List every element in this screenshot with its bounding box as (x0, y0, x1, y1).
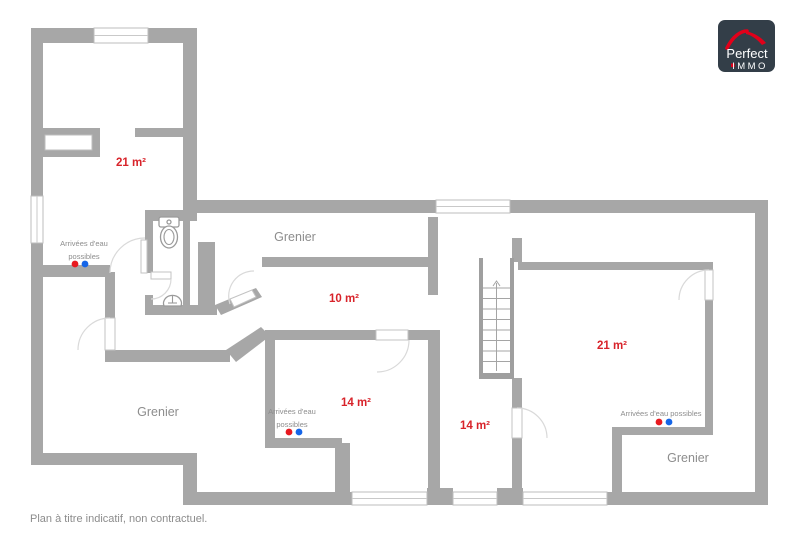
door (512, 408, 547, 438)
water-supply-bottom-left: Arrivées d'eau possibles (268, 407, 316, 435)
wall-segment (612, 427, 713, 435)
wall-segment (512, 378, 522, 408)
room-area-label: 21 m² (597, 340, 627, 352)
window (453, 492, 497, 505)
brand-logo: Perfect IMMO (718, 20, 775, 72)
wall-segment (265, 438, 342, 448)
hot-water-dot (656, 419, 663, 426)
room-name-label: Grenier (667, 451, 709, 465)
wall-segment (105, 350, 230, 362)
water-supply-label: possibles (68, 252, 100, 261)
floor-plan-drawing: Arrivées d'eau possibles Arrivées d'eau … (0, 0, 800, 534)
room-area-label: 14 m² (341, 397, 371, 409)
room-area-label: 10 m² (329, 293, 359, 305)
wall-pillar (497, 488, 523, 505)
wall-segment (755, 200, 768, 503)
room-name-label: Grenier (274, 230, 316, 244)
room-area-label: 14 m² (460, 420, 490, 432)
wall-segment (518, 262, 713, 270)
wall-segment (183, 28, 197, 212)
window (94, 28, 148, 43)
wall-segment (183, 492, 352, 505)
diagonal-wall (226, 327, 270, 362)
wall-segment (198, 242, 215, 313)
door (110, 238, 147, 273)
toilet-icon (159, 217, 179, 248)
door (376, 330, 409, 372)
hot-water-dot (286, 429, 293, 436)
wall-segment (105, 272, 115, 318)
wall-segment (705, 300, 713, 427)
water-supply-bottom-right: Arrivées d'eau possibles (620, 409, 701, 425)
cold-water-dot (296, 429, 303, 436)
wall-segment (31, 265, 110, 277)
room-area-label: 21 m² (116, 157, 146, 169)
chimney-flue (45, 135, 92, 150)
logo-suffix-text: IMMO (732, 61, 768, 72)
window (31, 196, 43, 243)
wall-segment (265, 330, 275, 448)
wall-segment (31, 43, 43, 196)
water-supply-top-left: Arrivées d'eau possibles (60, 239, 108, 267)
window (436, 200, 510, 213)
water-supply-label: Arrivées d'eau (60, 239, 108, 248)
cold-water-dot (82, 261, 89, 268)
wall-segment (183, 200, 436, 213)
wall-segment (428, 330, 440, 492)
sink-icon (163, 295, 181, 306)
disclaimer-text: Plan à titre indicatif, non contractuel. (30, 513, 207, 525)
water-supply-label: Arrivées d'eau (268, 407, 316, 416)
hot-water-dot (72, 261, 79, 268)
wall-segment (135, 128, 183, 137)
door (151, 272, 171, 299)
window (523, 492, 607, 505)
wall-segment (262, 257, 428, 267)
stairs-icon (479, 258, 514, 379)
logo-brand-text: Perfect (726, 46, 768, 61)
door (229, 271, 256, 307)
wall-segment (31, 453, 191, 465)
window (352, 492, 427, 505)
wall-segment (607, 492, 768, 505)
cold-water-dot (666, 419, 673, 426)
door (679, 270, 713, 300)
wall-segment (512, 438, 522, 492)
water-supply-label: Arrivées d'eau possibles (620, 409, 701, 418)
door (78, 318, 115, 350)
wall-segment (183, 221, 190, 305)
wall-pillar (427, 488, 453, 505)
wall-segment (265, 330, 376, 340)
water-supply-label: possibles (276, 420, 308, 429)
wall-segment (612, 427, 622, 492)
wall-segment (510, 200, 768, 213)
wall-segment (428, 217, 438, 295)
floor-plan: Arrivées d'eau possibles Arrivées d'eau … (0, 0, 800, 534)
wall-segment (31, 28, 94, 43)
wall-segment (335, 443, 350, 492)
room-name-label: Grenier (137, 405, 179, 419)
